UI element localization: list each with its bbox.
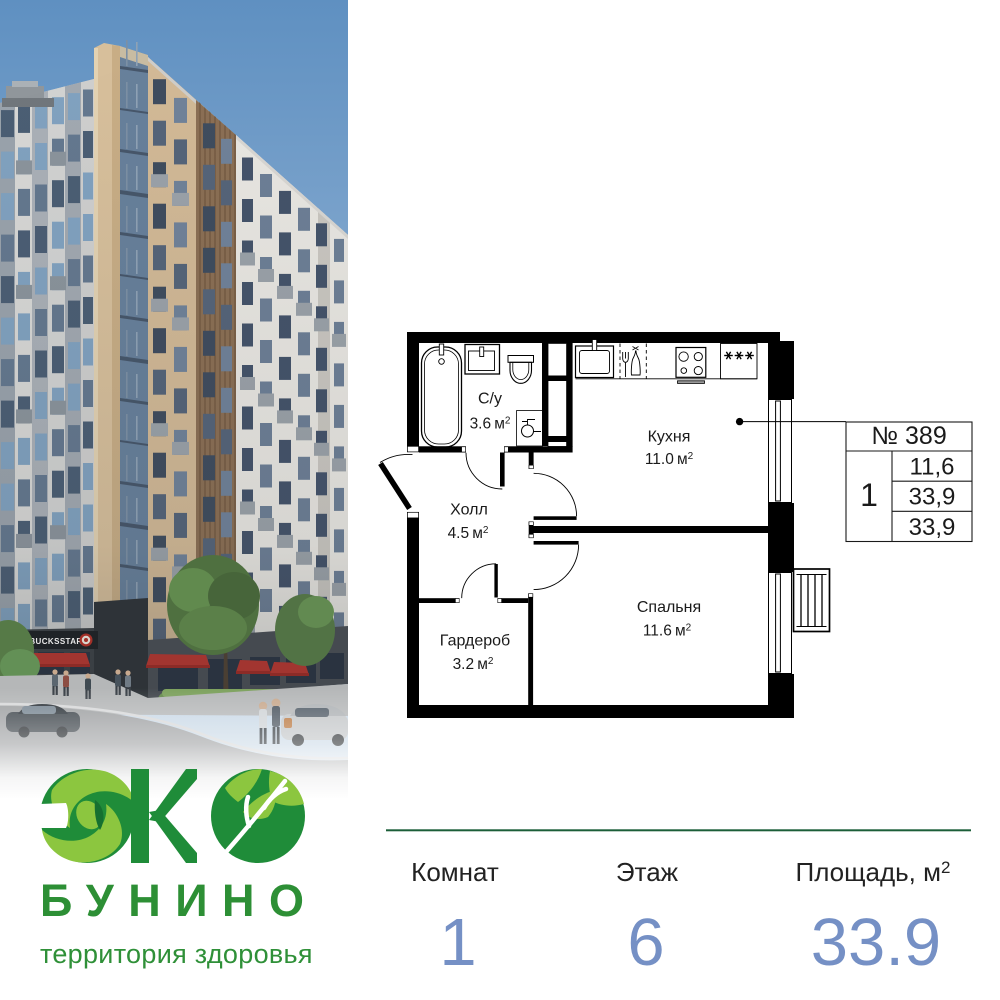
svg-text:№ 389: № 389 [871,422,946,450]
svg-text:33.9: 33.9 [811,905,941,980]
svg-text:1: 1 [439,905,476,980]
svg-text:Комнат: Комнат [411,857,499,887]
svg-text:БУНИНО: БУНИНО [40,875,319,926]
svg-text:Этаж: Этаж [616,857,679,887]
svg-text:11,6: 11,6 [910,454,955,481]
svg-text:4.5 м2: 4.5 м2 [448,525,489,542]
svg-text:С/у: С/у [478,391,502,408]
svg-text:1: 1 [860,477,878,513]
svg-text:Гардероб: Гардероб [440,633,510,650]
svg-text:33,9: 33,9 [909,484,956,511]
svg-text:3.6 м2: 3.6 м2 [470,416,511,433]
svg-text:3.2 м2: 3.2 м2 [453,656,494,673]
svg-text:6: 6 [627,905,664,980]
svg-text:33,9: 33,9 [909,514,956,541]
svg-text:11.6 м2: 11.6 м2 [643,623,692,640]
svg-text:Кухня: Кухня [648,429,691,446]
svg-text:BUCKSSTAR: BUCKSSTAR [29,637,82,646]
svg-text:11.0 м2: 11.0 м2 [645,451,694,468]
svg-text:территория здоровья: территория здоровья [40,939,313,969]
svg-text:Площадь, м2: Площадь, м2 [796,857,951,887]
svg-text:Холл: Холл [450,502,488,519]
svg-text:Спальня: Спальня [637,599,701,616]
